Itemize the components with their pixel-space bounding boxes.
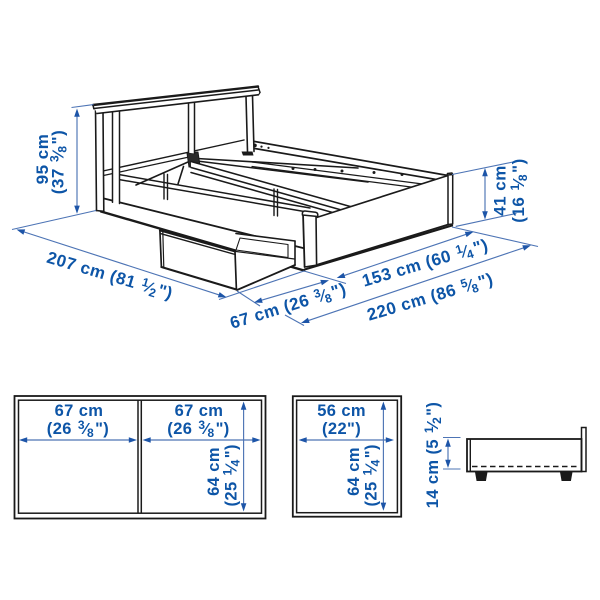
svg-text:(25 1⁄4"): (25 1⁄4") bbox=[220, 444, 242, 506]
svg-text:(26 3⁄8"): (26 3⁄8") bbox=[167, 418, 229, 440]
svg-text:(37 3⁄8"): (37 3⁄8") bbox=[48, 130, 70, 195]
svg-text:(22"): (22") bbox=[322, 420, 361, 438]
svg-text:(25 1⁄4"): (25 1⁄4") bbox=[360, 444, 382, 506]
svg-text:14 cm (5 1⁄2"): 14 cm (5 1⁄2") bbox=[422, 402, 444, 509]
svg-text:207 cm (81 1⁄2"): 207 cm (81 1⁄2") bbox=[44, 247, 175, 305]
svg-text:(26 3⁄8"): (26 3⁄8") bbox=[47, 418, 109, 440]
svg-text:(16 1⁄8"): (16 1⁄8") bbox=[508, 158, 530, 223]
svg-text:41 cm: 41 cm bbox=[491, 165, 510, 216]
svg-text:56 cm: 56 cm bbox=[317, 402, 366, 420]
